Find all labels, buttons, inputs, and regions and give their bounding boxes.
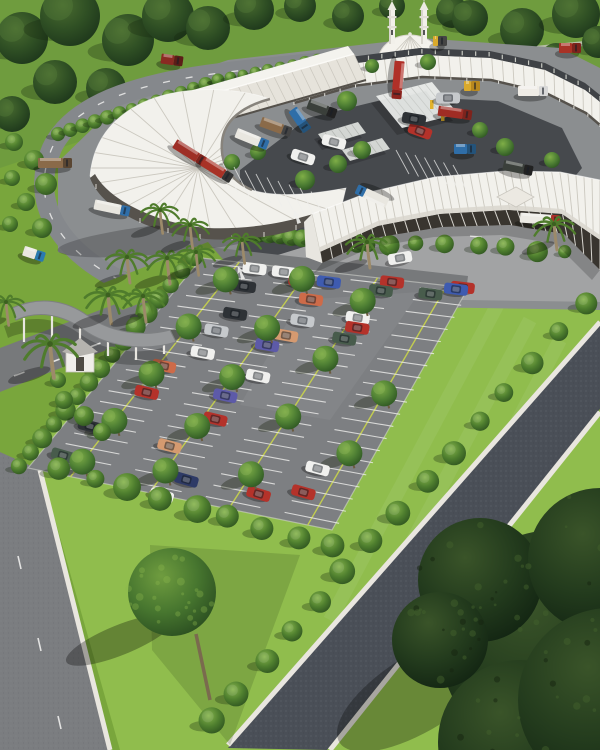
bush-highlight — [35, 431, 44, 440]
leaf-speckle — [518, 627, 523, 632]
kiosk-door — [76, 357, 84, 371]
clerestory-window — [502, 55, 503, 60]
leaf-speckle — [187, 601, 190, 604]
leaf-speckle — [573, 702, 580, 709]
bush-highlight — [187, 499, 199, 511]
leaf-speckle — [486, 730, 491, 735]
minaret-balcony — [420, 26, 429, 28]
leaf-speckle — [471, 605, 474, 608]
trailer-top — [435, 36, 436, 39]
bush-highlight — [312, 594, 322, 604]
leaf-speckle — [457, 609, 463, 615]
leaf-speckle — [524, 584, 529, 589]
minaret-balcony — [388, 26, 397, 28]
bush-highlight — [324, 537, 335, 548]
clerestory-window — [489, 52, 490, 57]
leaf-speckle — [201, 606, 208, 613]
bush-highlight — [27, 153, 36, 162]
clerestory-window — [448, 50, 449, 55]
leaf-speckle — [442, 628, 445, 631]
bush-highlight — [19, 195, 27, 203]
leaf-speckle — [567, 495, 571, 499]
bush-highlight — [419, 473, 429, 483]
trailer-top — [456, 144, 465, 147]
field-tree-highlight — [188, 9, 210, 31]
leaf-speckle — [139, 567, 145, 573]
leaf-speckle — [583, 695, 591, 703]
cab-windshield — [575, 45, 577, 52]
leaf-speckle — [525, 563, 531, 569]
bush-highlight — [48, 418, 55, 425]
field-tree-highlight — [35, 63, 57, 85]
bush-highlight — [361, 532, 372, 543]
bush-highlight — [472, 239, 480, 247]
clerestory-window — [578, 81, 579, 86]
bush-highlight — [552, 325, 560, 333]
bush-highlight — [239, 71, 244, 76]
parking-tree-highlight — [352, 290, 364, 302]
bush-highlight — [497, 385, 505, 393]
aerial-render-svg — [0, 0, 600, 750]
parking-tree-highlight — [178, 316, 190, 328]
courtyard-tree — [496, 138, 514, 156]
leaf-speckle — [155, 581, 159, 585]
leaf-speckle — [593, 708, 597, 712]
leaf-speckle — [460, 619, 466, 625]
bush-highlight — [151, 490, 162, 501]
palm-crown — [240, 238, 244, 242]
courtyard-tree — [472, 122, 488, 138]
bush-highlight — [4, 218, 11, 225]
cab-windshield — [470, 146, 472, 153]
courtyard-tree — [544, 152, 560, 168]
clerestory-window — [368, 56, 369, 61]
trailer-top — [40, 158, 61, 161]
parking-tree-highlight — [71, 451, 83, 463]
bush-highlight — [258, 652, 269, 663]
leaf-speckle — [490, 597, 493, 600]
leaf-speckle — [446, 541, 453, 548]
bush-highlight — [89, 472, 97, 480]
palm-crown — [194, 250, 198, 254]
bush-highlight — [13, 460, 20, 467]
bush-highlight — [524, 355, 534, 365]
clerestory-window — [565, 75, 566, 80]
car-roof — [377, 288, 385, 294]
parked-car — [432, 93, 460, 107]
field-tree-highlight — [454, 3, 472, 21]
bush-highlight — [24, 446, 32, 454]
leaf-speckle — [451, 599, 459, 607]
parking-tree-highlight — [154, 460, 166, 472]
leaf-speckle — [478, 620, 483, 625]
bush-highlight — [202, 711, 214, 723]
leaf-speckle — [494, 676, 500, 682]
leaf-speckle — [419, 608, 422, 611]
trailer-top — [466, 81, 469, 84]
clerestory-window — [528, 60, 529, 65]
leaf-speckle — [430, 557, 435, 562]
leaf-speckle — [477, 522, 483, 528]
parking-tree-highlight — [256, 317, 268, 329]
leaf-speckle — [479, 606, 482, 609]
bush-highlight — [6, 172, 13, 179]
leaf-speckle — [193, 609, 196, 612]
parking-tree-highlight — [221, 366, 233, 378]
minaret-window — [391, 30, 393, 35]
bush-highlight — [578, 295, 588, 305]
courtyard-tree — [337, 91, 357, 111]
leaf-speckle — [469, 647, 472, 650]
bush-highlight — [295, 232, 303, 240]
cab-windshield — [474, 83, 476, 90]
palm-crown — [4, 300, 8, 304]
clerestory-window — [589, 88, 590, 93]
palm-crown — [158, 208, 162, 212]
bush-highlight — [117, 477, 130, 490]
parking-tree-highlight — [314, 348, 326, 360]
leaf-speckle — [544, 650, 548, 654]
leaf-speckle — [593, 628, 597, 632]
bush-highlight — [50, 460, 60, 470]
bush-highlight — [389, 504, 400, 515]
cab-windshield — [66, 160, 68, 167]
car-roof — [325, 279, 333, 285]
leaf-speckle — [181, 592, 184, 595]
leaf-speckle — [125, 585, 132, 592]
clerestory-window — [408, 50, 409, 55]
leaf-speckle — [543, 610, 549, 616]
leaf-speckle — [556, 695, 559, 698]
field-tree-highlight — [88, 71, 108, 91]
field-tree-highlight — [584, 28, 600, 44]
bush-highlight — [189, 83, 195, 89]
bush-highlight — [65, 125, 71, 131]
roof-rib — [583, 89, 584, 112]
parking-tree-highlight — [291, 268, 303, 280]
leaf-speckle — [493, 698, 497, 702]
car-roof — [251, 266, 259, 272]
cab-windshield — [542, 88, 544, 95]
leaf-speckle — [152, 596, 156, 600]
bush-highlight — [35, 221, 44, 230]
leaf-speckle — [475, 583, 482, 590]
bush-highlight — [95, 425, 103, 433]
bush-highlight — [499, 240, 507, 248]
trailer-top — [520, 86, 537, 89]
leaf-speckle — [590, 618, 594, 622]
leaf-speckle — [514, 555, 521, 562]
leaf-speckle — [177, 578, 185, 586]
courtyard-tree — [353, 141, 371, 159]
bush-highlight — [93, 361, 102, 370]
leaf-speckle — [209, 601, 214, 606]
leaf-speckle — [494, 603, 497, 606]
leaf-speckle — [129, 603, 132, 606]
field-tree-highlight — [334, 2, 350, 18]
leaf-speckle — [157, 620, 161, 624]
leaf-speckle — [422, 610, 426, 614]
leaf-speckle — [437, 676, 445, 684]
palm-crown — [165, 256, 169, 260]
bush-highlight — [253, 520, 263, 530]
clerestory-window — [475, 51, 476, 56]
roof-rib — [573, 84, 574, 107]
leaf-speckle — [417, 565, 422, 570]
truck — [33, 158, 72, 174]
bush-highlight — [200, 79, 206, 85]
bush-highlight — [7, 135, 15, 143]
parking-tree-highlight — [103, 410, 115, 422]
leaf-speckle — [450, 630, 456, 636]
leaf-speckle — [462, 655, 466, 659]
minaret-window — [423, 30, 425, 35]
leaf-speckle — [473, 617, 477, 621]
clerestory-window — [553, 69, 554, 74]
bush-highlight — [114, 108, 120, 114]
courtyard-tree — [365, 59, 379, 73]
car-roof — [427, 291, 435, 297]
bush-highlight — [53, 129, 59, 135]
leaf-speckle — [476, 698, 481, 703]
parking-tree-highlight — [240, 463, 252, 475]
bush-highlight — [290, 529, 300, 539]
render-viewport — [0, 0, 600, 750]
bush-highlight — [38, 176, 48, 186]
leaf-speckle — [451, 649, 458, 656]
leaf-speckle — [515, 733, 519, 737]
bush-highlight — [284, 623, 293, 632]
courtyard-tree — [329, 155, 347, 173]
leaf-speckle — [550, 681, 556, 687]
bush-highlight — [82, 376, 90, 384]
bush-highlight — [226, 73, 231, 78]
leaf-speckle — [587, 581, 591, 585]
parking-tree-highlight — [373, 382, 385, 394]
dome-finial — [408, 32, 412, 36]
car-roof — [280, 269, 288, 275]
car-roof — [240, 283, 248, 289]
leaf-speckle — [495, 591, 497, 593]
leaf-speckle — [172, 555, 178, 561]
palm-crown — [552, 222, 556, 226]
leaf-speckle — [457, 734, 464, 741]
bush-highlight — [473, 414, 482, 423]
leaf-speckle — [136, 593, 144, 601]
car-roof — [445, 96, 452, 101]
leaf-speckle — [407, 609, 414, 616]
leaf-speckle — [469, 630, 476, 637]
leaf-speckle — [163, 576, 170, 583]
minaret-balcony — [388, 16, 397, 18]
cab-windshield — [441, 38, 443, 45]
leaf-speckle — [195, 588, 199, 592]
leaf-speckle — [503, 580, 507, 584]
leaf-speckle — [564, 638, 571, 645]
palm-crown — [106, 293, 111, 298]
palm-crown — [125, 255, 129, 259]
minaret-balcony — [420, 16, 429, 18]
bush-highlight — [438, 237, 446, 245]
bush-highlight — [102, 112, 109, 119]
leaf-speckle — [175, 611, 180, 616]
leaf-speckle — [180, 556, 185, 561]
bush-highlight — [227, 685, 238, 696]
courtyard-tree — [295, 170, 315, 190]
car-roof — [388, 279, 396, 285]
palm-crown — [188, 223, 192, 227]
clerestory-window — [541, 63, 542, 68]
bush-highlight — [333, 562, 345, 574]
field-tree-highlight — [502, 11, 524, 33]
clerestory-window — [515, 58, 516, 63]
leaf-speckle — [187, 615, 193, 621]
leaf-speckle — [140, 574, 144, 578]
bush-highlight — [445, 444, 456, 455]
bush-highlight — [77, 120, 84, 127]
courtyard-tree — [420, 54, 436, 70]
palm-crown — [365, 240, 369, 244]
bush-highlight — [77, 409, 86, 418]
leaf-speckle — [517, 716, 520, 719]
bush-highlight — [219, 508, 229, 518]
leaf-speckle — [521, 565, 524, 568]
leaf-speckle — [193, 621, 198, 626]
courtyard-tree — [224, 154, 240, 170]
car-roof — [452, 286, 460, 292]
leaf-speckle — [544, 658, 548, 662]
palm-crown — [47, 341, 53, 347]
bush-highlight — [90, 116, 97, 123]
bush-highlight — [213, 75, 219, 81]
leaf-speckle — [155, 605, 161, 611]
truck — [514, 86, 549, 102]
parking-tree-highlight — [215, 268, 227, 280]
leaf-speckle — [533, 619, 539, 625]
leaf-speckle — [565, 525, 568, 528]
parking-tree-highlight — [277, 405, 289, 417]
bush-highlight — [57, 393, 65, 401]
leaf-speckle — [158, 564, 164, 570]
leaf-speckle — [462, 627, 465, 630]
leaf-speckle — [450, 668, 454, 672]
trailer-top — [561, 43, 570, 46]
clerestory-window — [421, 49, 422, 54]
leaf-speckle — [132, 603, 139, 610]
clerestory-window — [462, 51, 463, 56]
leaf-speckle — [584, 640, 590, 646]
parking-tree-highlight — [186, 415, 198, 427]
palm-crown — [141, 294, 145, 298]
parking-tree-highlight — [338, 442, 350, 454]
field-tree-highlight — [105, 18, 131, 44]
leaf-speckle — [477, 638, 480, 641]
clerestory-window — [381, 54, 382, 59]
leaf-speckle — [185, 606, 188, 609]
leaf-speckle — [514, 615, 520, 621]
